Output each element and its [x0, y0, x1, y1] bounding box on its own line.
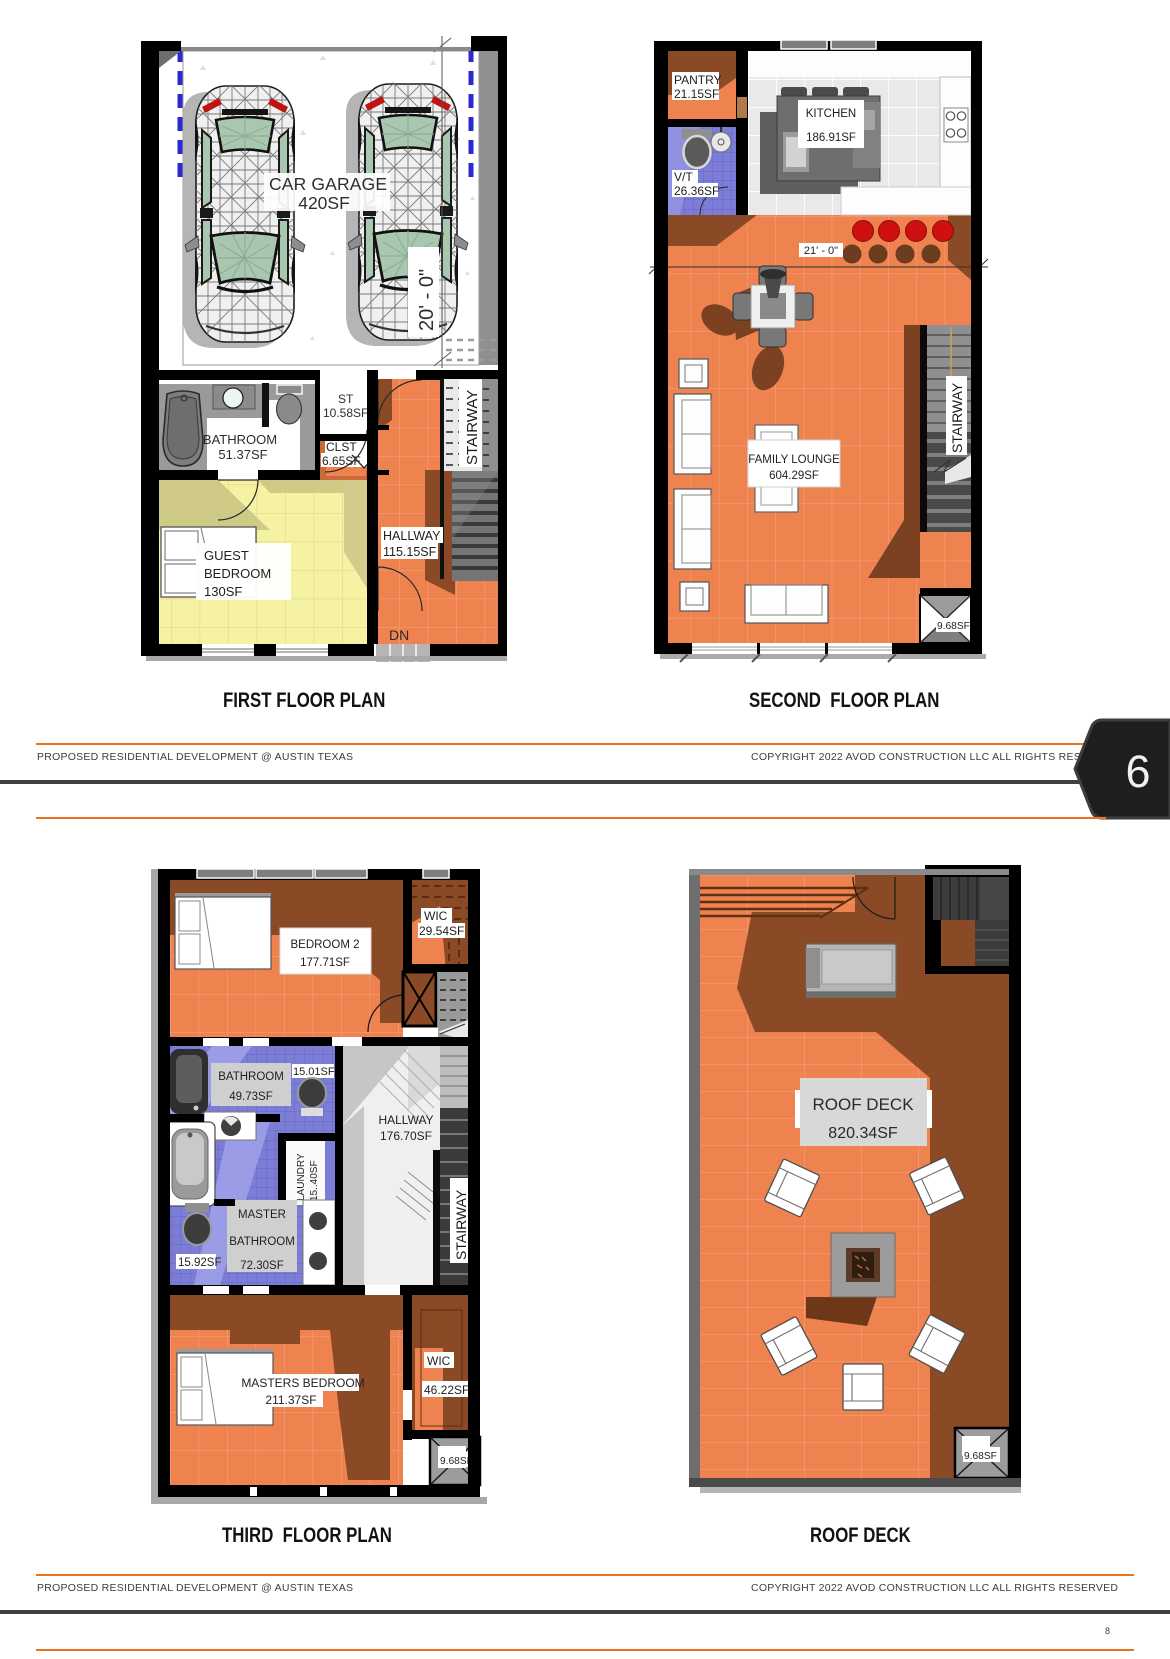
svg-text:MASTER: MASTER — [238, 1209, 286, 1221]
svg-text:9.68SF: 9.68SF — [440, 1456, 473, 1467]
svg-text:WIC: WIC — [424, 909, 448, 923]
svg-text:STAIRWAY: STAIRWAY — [453, 1189, 469, 1260]
svg-text:177.71SF: 177.71SF — [300, 957, 350, 969]
svg-text:6: 6 — [1125, 746, 1150, 797]
svg-text:CAR GARAGE: CAR GARAGE — [269, 174, 387, 194]
svg-text:186.91SF: 186.91SF — [806, 132, 856, 144]
svg-text:WIC: WIC — [427, 1354, 451, 1368]
svg-text:51.37SF: 51.37SF — [218, 447, 267, 462]
svg-text:STAIRWAY: STAIRWAY — [464, 390, 481, 465]
svg-text:BEDROOM 2: BEDROOM 2 — [290, 939, 359, 951]
svg-text:PANTRY: PANTRY — [674, 73, 722, 87]
svg-text:FAMILY LOUNGE: FAMILY LOUNGE — [748, 454, 840, 466]
svg-text:20' - 0": 20' - 0" — [416, 269, 438, 331]
svg-text:820.34SF: 820.34SF — [828, 1125, 898, 1142]
svg-text:ST: ST — [338, 392, 354, 406]
svg-text:LAUNDRY: LAUNDRY — [296, 1153, 307, 1201]
svg-text:72.30SF: 72.30SF — [240, 1260, 283, 1272]
svg-text:15.01SF: 15.01SF — [293, 1066, 335, 1078]
svg-text:49.73SF: 49.73SF — [229, 1091, 272, 1103]
svg-text:9.68SF: 9.68SF — [937, 621, 970, 632]
svg-text:211.37SF: 211.37SF — [265, 1393, 316, 1407]
svg-text:130SF: 130SF — [204, 584, 242, 599]
svg-text:21.15SF: 21.15SF — [674, 87, 719, 101]
svg-text:10.58SF: 10.58SF — [323, 406, 368, 420]
svg-text:BATHROOM: BATHROOM — [218, 1071, 284, 1083]
svg-text:21' - 0": 21' - 0" — [804, 245, 838, 257]
svg-text:15..40SF: 15..40SF — [309, 1160, 320, 1201]
svg-text:HALLWAY: HALLWAY — [378, 1113, 433, 1127]
svg-text:115.15SF: 115.15SF — [383, 545, 437, 559]
svg-text:HALLWAY: HALLWAY — [383, 529, 441, 543]
svg-text:MASTERS BEDROOM: MASTERS BEDROOM — [241, 1376, 364, 1390]
svg-text:BATHROOM: BATHROOM — [203, 432, 277, 447]
svg-text:176.70SF: 176.70SF — [380, 1129, 432, 1143]
svg-text:420SF: 420SF — [298, 193, 350, 213]
svg-text:26.36SF: 26.36SF — [674, 184, 719, 198]
svg-text:KITCHEN: KITCHEN — [806, 108, 856, 120]
svg-text:9.68SF: 9.68SF — [964, 1451, 997, 1462]
svg-text:BEDROOM: BEDROOM — [204, 566, 271, 581]
svg-text:ROOF DECK: ROOF DECK — [812, 1095, 914, 1114]
svg-text:6.65SF: 6.65SF — [322, 454, 361, 468]
svg-text:CLST: CLST — [326, 440, 357, 454]
svg-text:604.29SF: 604.29SF — [769, 470, 819, 482]
svg-text:46.22SF: 46.22SF — [424, 1383, 469, 1397]
svg-text:GUEST: GUEST — [204, 548, 249, 563]
svg-text:V/T: V/T — [674, 170, 693, 184]
svg-text:DN: DN — [389, 627, 409, 643]
svg-text:BATHROOM: BATHROOM — [229, 1236, 295, 1248]
svg-text:15.92SF: 15.92SF — [178, 1257, 221, 1269]
svg-text:STAIRWAY: STAIRWAY — [949, 382, 965, 453]
svg-text:29.54SF: 29.54SF — [419, 924, 464, 938]
